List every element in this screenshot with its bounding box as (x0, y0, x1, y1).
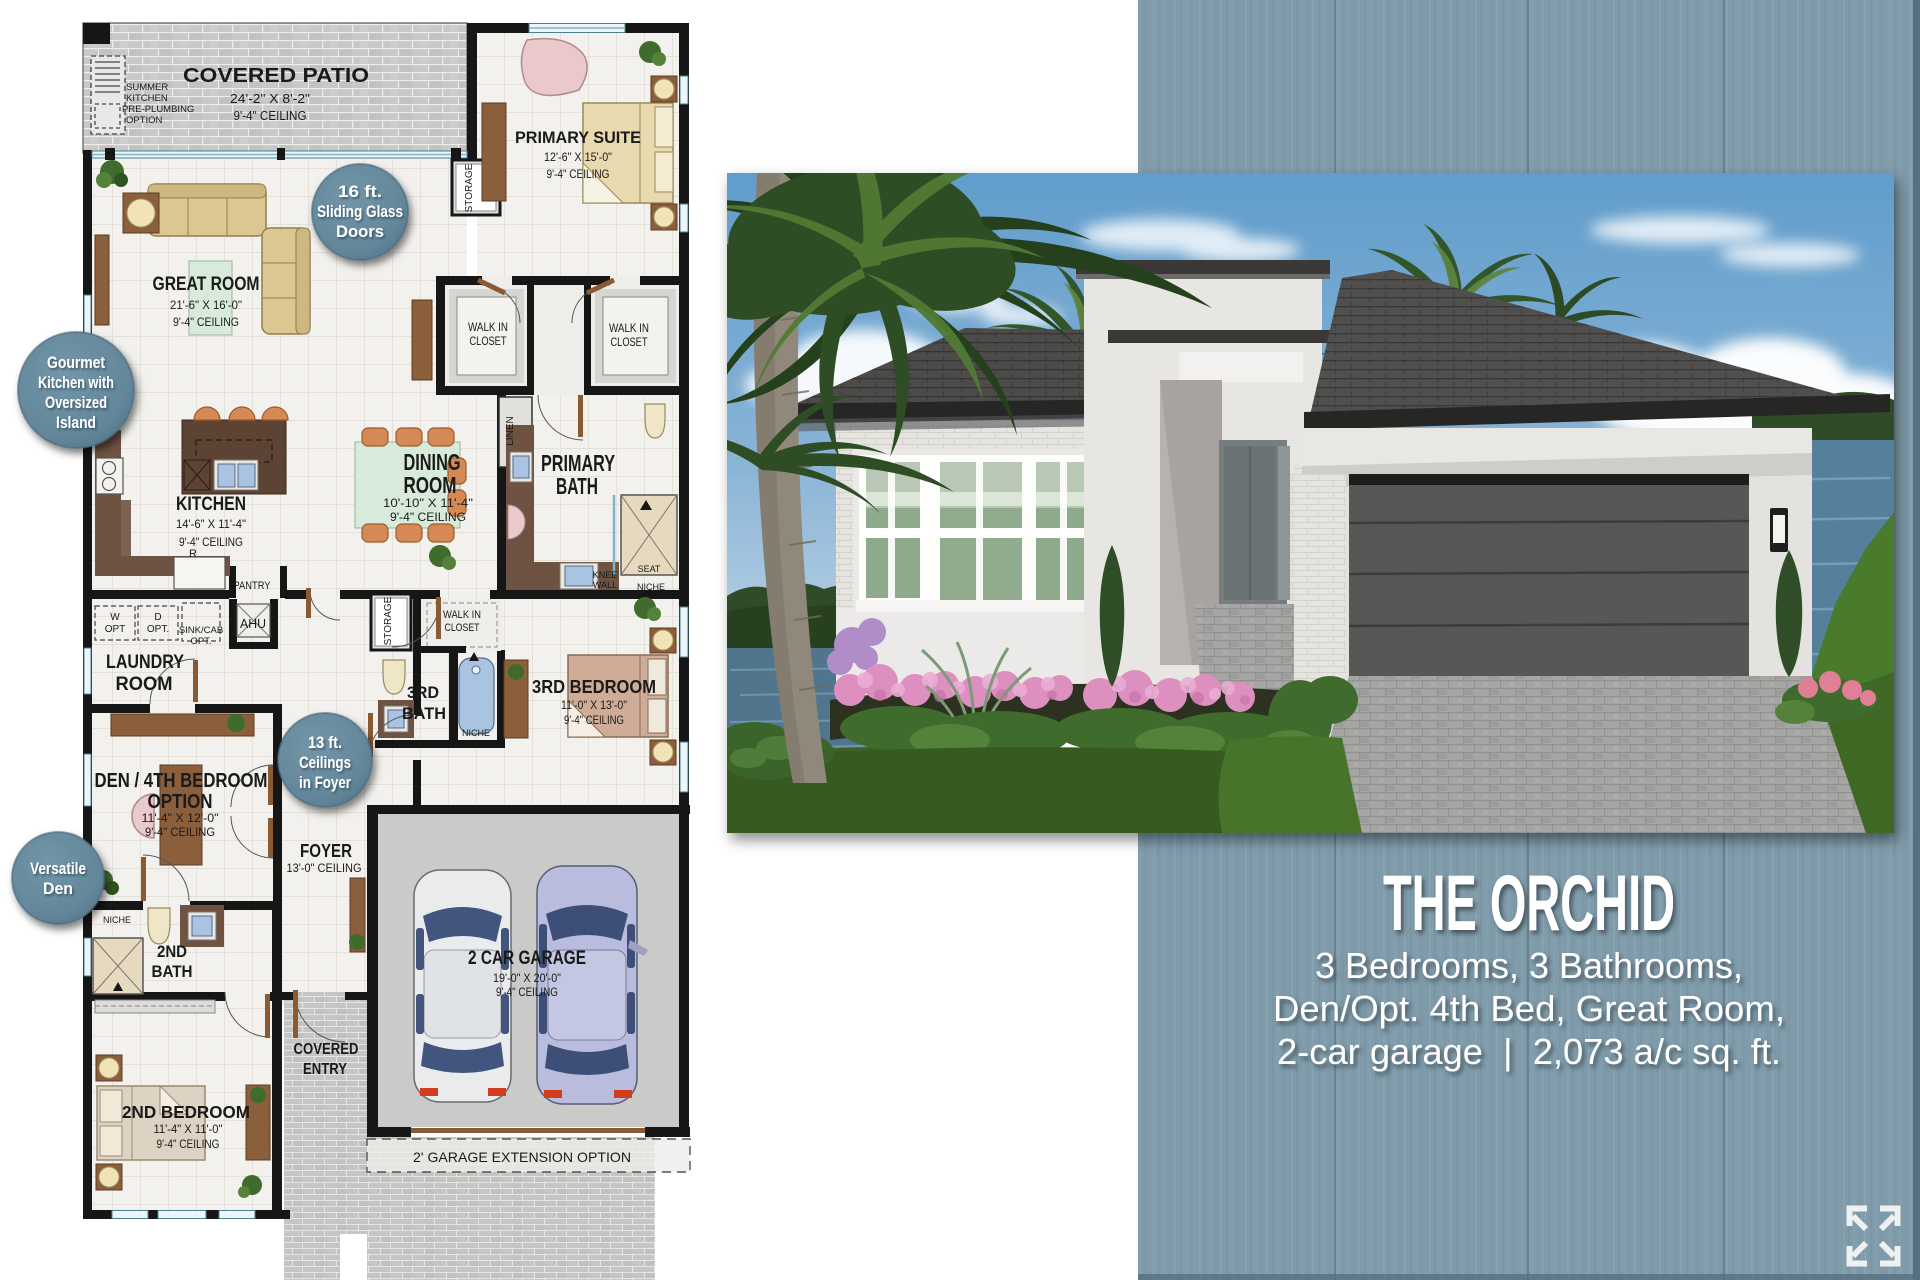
svg-text:9'-4" CEILING: 9'-4" CEILING (564, 715, 624, 727)
svg-text:2ND BEDROOM: 2ND BEDROOM (122, 1102, 250, 1122)
svg-text:STORAGE: STORAGE (464, 163, 475, 212)
svg-text:9'-4" CEILING: 9'-4" CEILING (390, 512, 466, 524)
svg-text:W: W (110, 612, 120, 623)
svg-text:Kitchen with: Kitchen with (38, 373, 114, 392)
svg-text:PRE-PLUMBING: PRE-PLUMBING (122, 104, 194, 115)
svg-text:WALK IN: WALK IN (468, 322, 508, 334)
svg-text:ROOM: ROOM (404, 472, 457, 498)
svg-text:Gourmet: Gourmet (47, 353, 105, 372)
svg-text:2 CAR GARAGE: 2 CAR GARAGE (468, 947, 586, 969)
svg-text:9'-4" CEILING: 9'-4" CEILING (145, 827, 215, 839)
svg-text:PRIMARY SUITE: PRIMARY SUITE (515, 128, 641, 147)
svg-text:11'-0" X 13'-0": 11'-0" X 13'-0" (561, 700, 627, 712)
svg-text:12'-6" X 15'-0": 12'-6" X 15'-0" (544, 150, 612, 164)
svg-text:19'-0" X 20'-0": 19'-0" X 20'-0" (493, 971, 561, 985)
svg-text:LINEN: LINEN (505, 416, 516, 445)
svg-text:2-car garage | 2,073 a/c sq.: 2-car garage | 2,073 a/c sq. ft. (1277, 1031, 1781, 1072)
svg-text:Oversized: Oversized (45, 393, 107, 412)
svg-text:3RD BEDROOM: 3RD BEDROOM (532, 676, 656, 697)
svg-text:9'-4" CEILING: 9'-4" CEILING (179, 535, 243, 549)
svg-text:FOYER: FOYER (300, 841, 352, 861)
svg-text:Sliding Glass: Sliding Glass (317, 202, 403, 221)
svg-text:KITCHEN: KITCHEN (126, 93, 168, 104)
svg-text:WALL: WALL (593, 580, 617, 590)
svg-text:9'-4" CEILING: 9'-4" CEILING (157, 1139, 220, 1151)
svg-text:D: D (154, 612, 161, 623)
svg-text:ENTRY: ENTRY (303, 1061, 347, 1078)
svg-text:Den: Den (43, 879, 73, 898)
svg-text:OPTION: OPTION (148, 791, 213, 813)
svg-text:Den/Opt. 4th Bed, Great Room,: Den/Opt. 4th Bed, Great Room, (1273, 988, 1785, 1029)
svg-text:STORAGE: STORAGE (383, 596, 394, 645)
svg-text:11'-4" X 12'-0": 11'-4" X 12'-0" (142, 813, 219, 825)
svg-text:14'-6" X 11'-4": 14'-6" X 11'-4" (176, 517, 246, 531)
svg-text:Island: Island (56, 413, 96, 432)
svg-text:PANTRY: PANTRY (234, 580, 272, 592)
svg-text:9'-4" CEILING: 9'-4" CEILING (496, 985, 558, 999)
svg-text:13'-0" CEILING: 13'-0" CEILING (287, 863, 362, 875)
svg-text:WALK IN: WALK IN (609, 323, 649, 335)
svg-text:AHU: AHU (240, 616, 266, 631)
svg-text:COVERED: COVERED (294, 1041, 359, 1058)
svg-text:16 ft.: 16 ft. (338, 182, 382, 201)
svg-text:OPTION: OPTION (126, 115, 163, 126)
svg-text:BATH: BATH (152, 962, 193, 981)
svg-text:KNEE: KNEE (593, 570, 618, 580)
svg-text:BATH: BATH (402, 704, 446, 723)
svg-text:11'-4" X 11'-0": 11'-4" X 11'-0" (154, 1124, 223, 1136)
svg-text:in Foyer: in Foyer (299, 773, 351, 792)
svg-text:10'-10" X 11'-4": 10'-10" X 11'-4" (383, 498, 473, 510)
svg-text:LAUNDRY: LAUNDRY (106, 652, 184, 673)
svg-text:OPT.: OPT. (190, 636, 211, 647)
svg-text:NICHE: NICHE (103, 915, 131, 925)
svg-text:9'-4" CEILING: 9'-4" CEILING (547, 167, 610, 181)
svg-text:Versatile: Versatile (30, 859, 86, 878)
svg-text:COVERED PATIO: COVERED PATIO (183, 65, 369, 87)
svg-text:24'-2" X 8'-2": 24'-2" X 8'-2" (230, 91, 310, 106)
svg-text:SEAT: SEAT (638, 564, 661, 574)
svg-text:3RD: 3RD (407, 683, 439, 702)
svg-text:9'-4" CEILING: 9'-4" CEILING (234, 108, 307, 123)
svg-text:WALK IN: WALK IN (443, 609, 481, 621)
svg-text:BATH: BATH (556, 473, 598, 499)
svg-text:13 ft.: 13 ft. (308, 733, 342, 752)
svg-text:CLOSET: CLOSET (611, 337, 648, 349)
svg-text:CLOSET: CLOSET (470, 336, 507, 348)
svg-text:NICHE: NICHE (637, 582, 665, 592)
svg-text:OPT: OPT (105, 624, 126, 635)
svg-text:21'-6" X 16'-0": 21'-6" X 16'-0" (170, 298, 242, 312)
svg-text:NICHE: NICHE (462, 728, 490, 738)
svg-text:OPT.: OPT. (147, 624, 169, 635)
svg-text:9'-4" CEILING: 9'-4" CEILING (173, 315, 239, 329)
svg-text:Doors: Doors (336, 222, 384, 241)
svg-text:Ceilings: Ceilings (299, 753, 351, 772)
svg-text:2ND: 2ND (157, 942, 187, 961)
svg-text:R: R (189, 548, 197, 560)
svg-text:DEN / 4TH BEDROOM: DEN / 4TH BEDROOM (95, 770, 268, 792)
svg-text:ROOM: ROOM (116, 674, 173, 695)
svg-text:SUMMER: SUMMER (126, 82, 168, 93)
svg-text:CLOSET: CLOSET (445, 622, 480, 634)
svg-text:SINK/CAB: SINK/CAB (179, 625, 223, 636)
svg-text:2' GARAGE EXTENSION OPTION: 2' GARAGE EXTENSION OPTION (413, 1149, 631, 1165)
svg-text:THE ORCHID: THE ORCHID (1383, 858, 1675, 947)
svg-text:GREAT ROOM: GREAT ROOM (153, 274, 260, 295)
svg-text:3 Bedrooms, 3 Bathrooms,: 3 Bedrooms, 3 Bathrooms, (1315, 945, 1743, 986)
svg-text:KITCHEN: KITCHEN (176, 494, 246, 515)
